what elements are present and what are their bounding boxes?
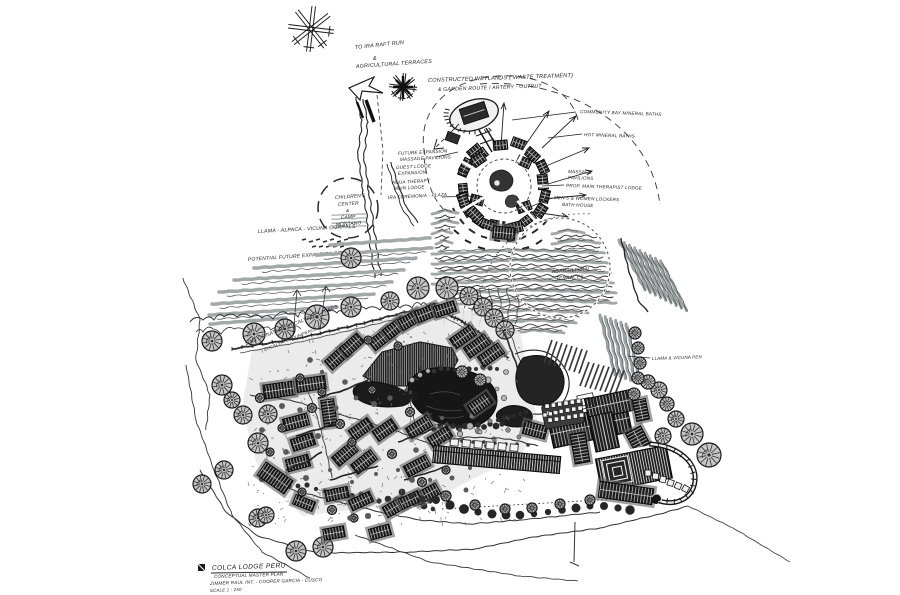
svg-text:&: & <box>373 56 377 62</box>
svg-text:CAMP: CAMP <box>341 214 357 221</box>
svg-text:PAVILIONS: PAVILIONS <box>568 175 594 181</box>
svg-text:&: & <box>346 208 349 214</box>
svg-text:MASSAGE: MASSAGE <box>568 169 593 175</box>
